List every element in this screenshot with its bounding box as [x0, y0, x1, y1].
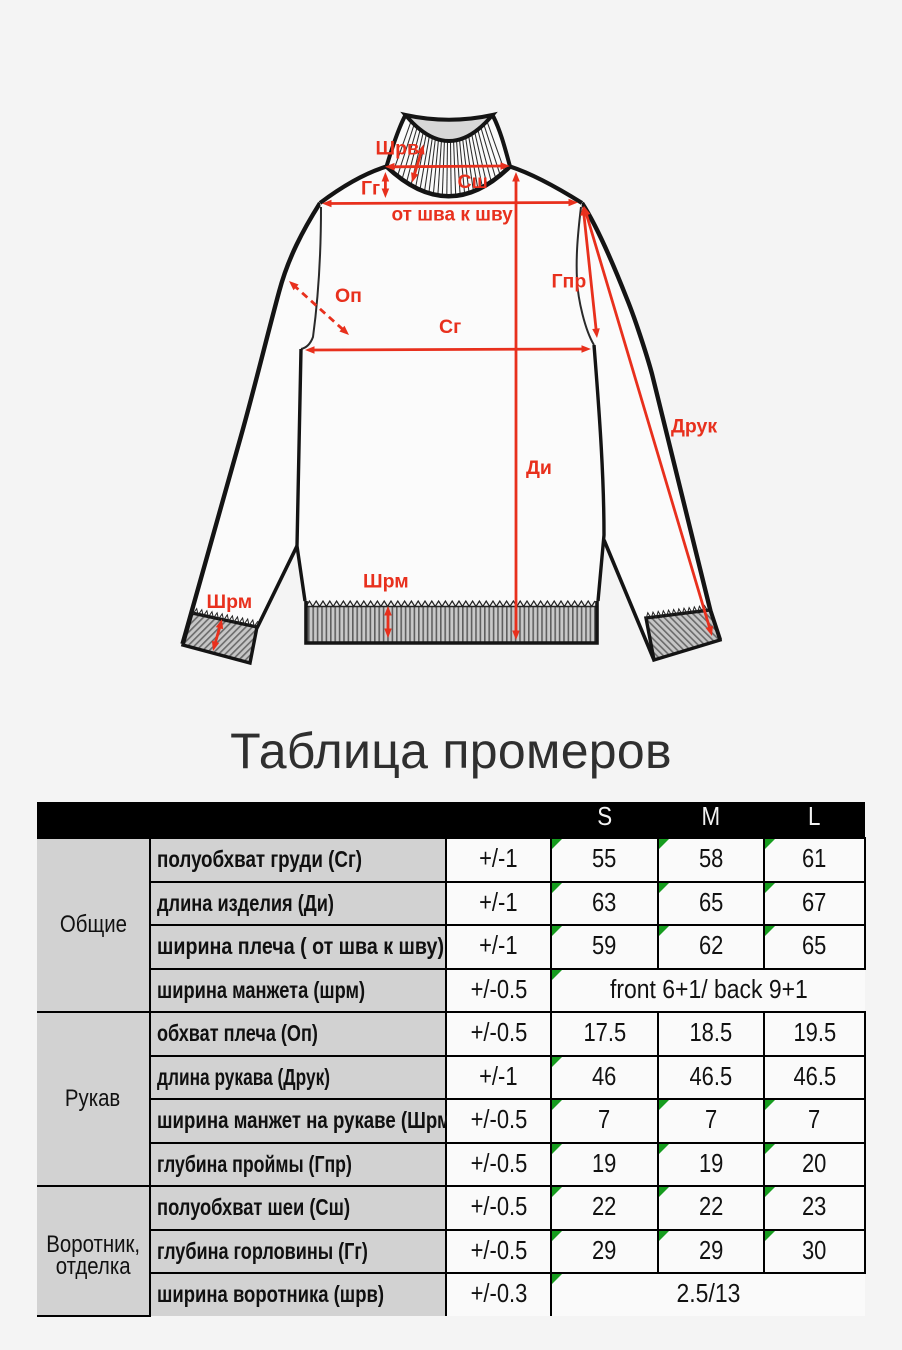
- svg-text:Сш: Сш: [458, 171, 488, 193]
- svg-text:Оп: Оп: [335, 285, 362, 307]
- svg-text:Друк: Друк: [671, 416, 717, 438]
- svg-text:Сг: Сг: [439, 316, 461, 338]
- svg-text:Гпр: Гпр: [552, 271, 587, 293]
- svg-text:Шрв: Шрв: [376, 138, 420, 160]
- svg-text:от шва к шву: от шва к шву: [392, 205, 514, 226]
- svg-text:Ди: Ди: [526, 457, 552, 479]
- svg-text:Шрм: Шрм: [363, 571, 409, 593]
- svg-text:Шрм: Шрм: [207, 591, 253, 613]
- svg-text:Гг: Гг: [361, 178, 380, 200]
